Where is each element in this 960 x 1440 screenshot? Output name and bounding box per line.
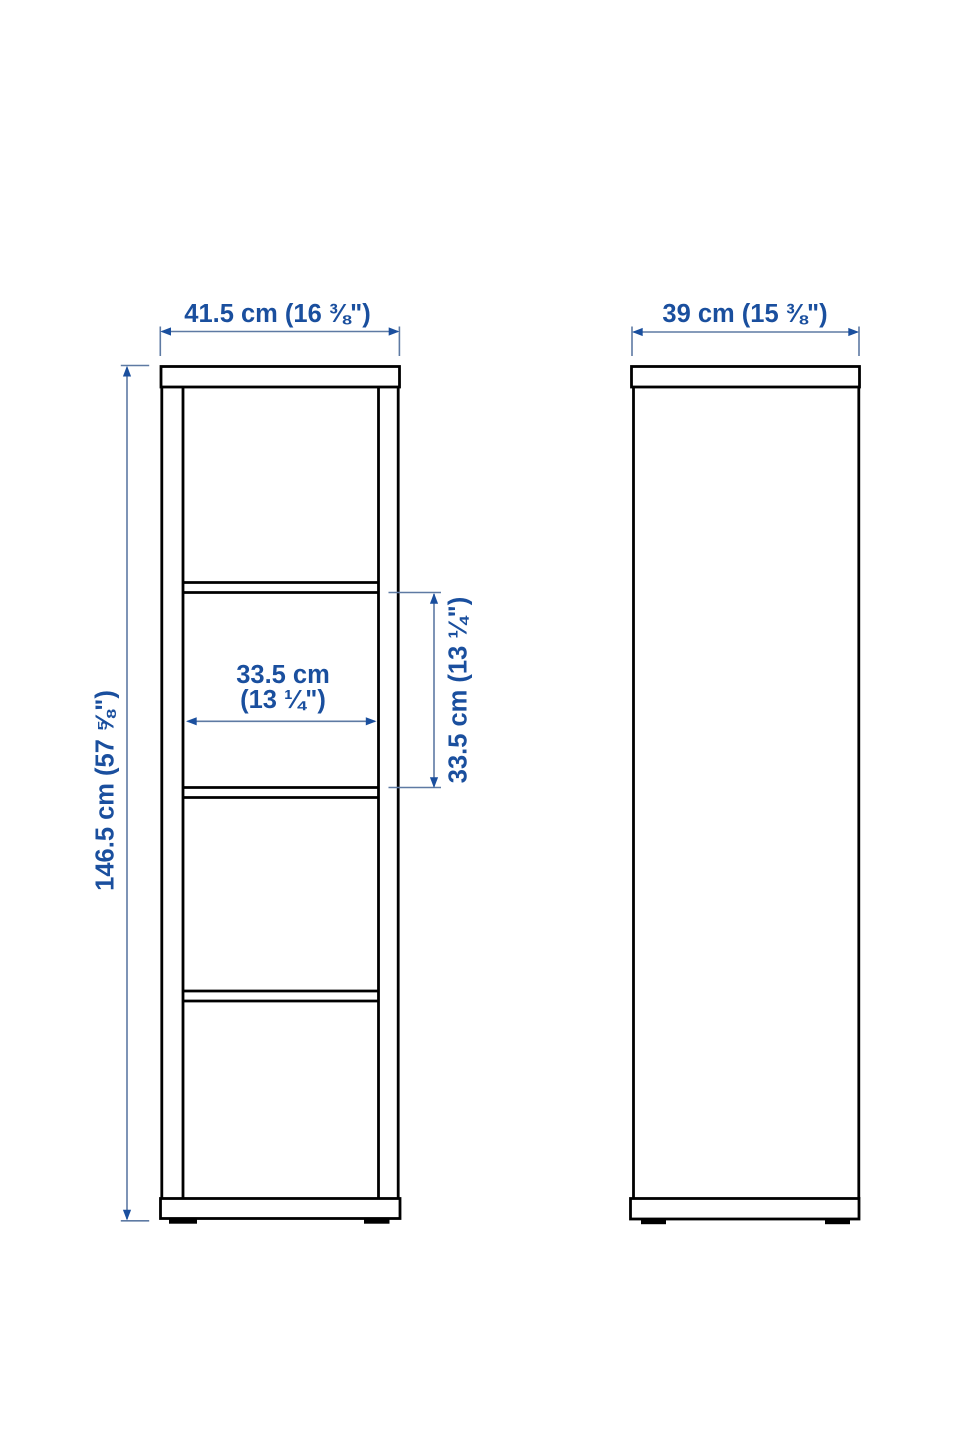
- svg-text:39 cm (15 ⅜"): 39 cm (15 ⅜"): [662, 300, 827, 328]
- svg-text:41.5 cm (16 ⅜"): 41.5 cm (16 ⅜"): [184, 300, 370, 328]
- svg-text:(13 ¼"): (13 ¼"): [240, 686, 326, 714]
- svg-text:146.5 cm (57 ⅝"): 146.5 cm (57 ⅝"): [92, 690, 120, 891]
- svg-text:33.5 cm: 33.5 cm: [236, 661, 330, 689]
- svg-text:33.5 cm (13 ¼"): 33.5 cm (13 ¼"): [445, 597, 473, 783]
